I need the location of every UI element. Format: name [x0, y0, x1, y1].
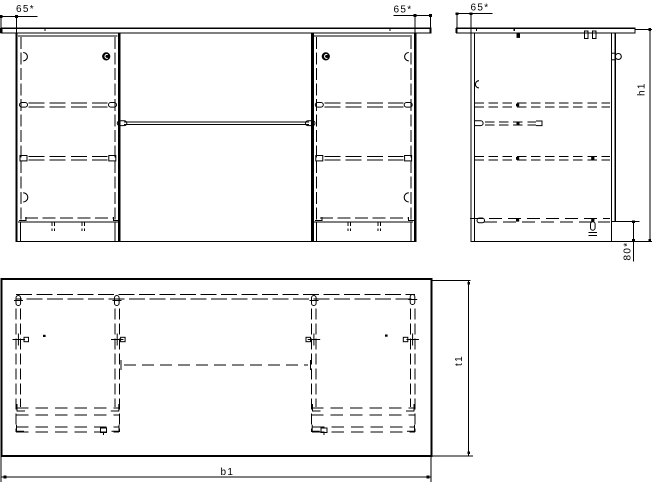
svg-text:h1: h1 [637, 82, 648, 96]
svg-text:65*: 65* [471, 3, 490, 14]
svg-text:80*: 80* [623, 242, 634, 261]
svg-text:b1: b1 [221, 467, 235, 478]
svg-text:65*: 65* [16, 4, 35, 15]
svg-text:65*: 65* [394, 5, 413, 16]
svg-text:t1: t1 [454, 355, 465, 366]
